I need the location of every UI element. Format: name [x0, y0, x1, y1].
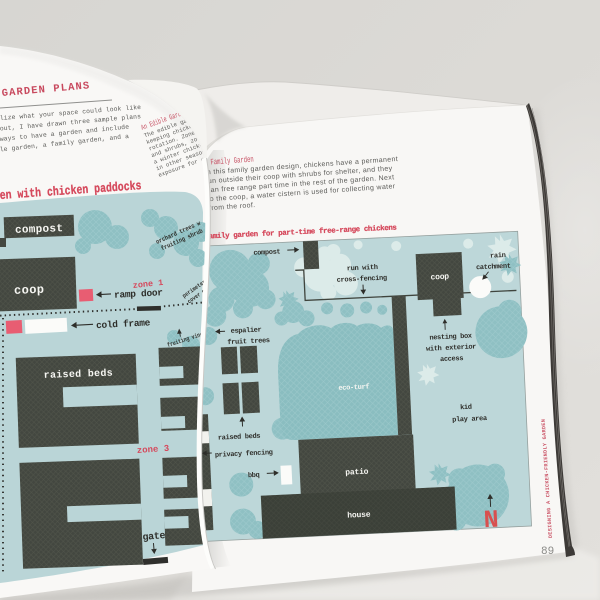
svg-text:house: house — [347, 511, 371, 521]
svg-text:compost: compost — [15, 223, 64, 237]
svg-text:rain: rain — [490, 252, 506, 261]
svg-text:N: N — [483, 506, 499, 536]
svg-text:run with: run with — [347, 264, 378, 273]
svg-text:access: access — [440, 355, 464, 364]
svg-text:89: 89 — [541, 546, 554, 558]
svg-text:patio: patio — [345, 468, 369, 478]
svg-text:kid: kid — [460, 404, 472, 413]
svg-text:gate: gate — [142, 531, 166, 544]
svg-text:espalier: espalier — [230, 326, 261, 335]
svg-text:eco-turf: eco-turf — [338, 383, 369, 392]
svg-text:bbq: bbq — [248, 472, 260, 481]
svg-text:catchment: catchment — [476, 263, 511, 273]
svg-text:compost: compost — [253, 249, 280, 258]
svg-text:play area: play area — [452, 415, 488, 425]
svg-text:coop: coop — [430, 273, 449, 283]
svg-text:raised beds: raised beds — [44, 368, 114, 382]
svg-text:coop: coop — [14, 283, 45, 298]
